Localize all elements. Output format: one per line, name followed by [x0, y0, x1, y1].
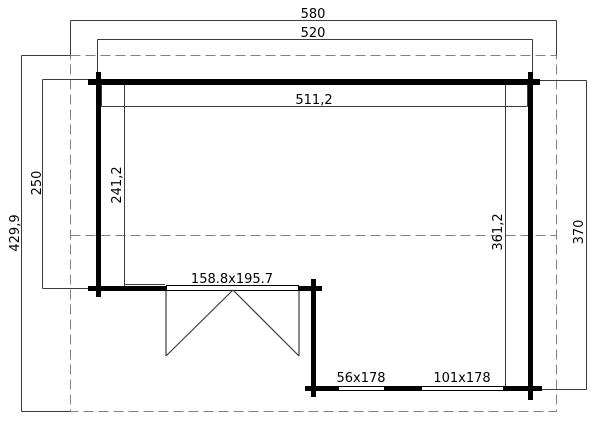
wall-top	[88, 79, 540, 85]
floor-plan-canvas: 580 520 511,2 241,2 250 429,9 361,2 370 …	[0, 0, 600, 429]
wall-right	[528, 72, 533, 400]
double-door	[166, 286, 299, 357]
wall-door-right	[299, 286, 322, 291]
dim-label-right-section-depth: 370	[572, 220, 587, 245]
dim-label-left-section-depth: 250	[30, 171, 45, 196]
wall-middle-vertical	[311, 279, 316, 397]
floor-plan: 580 520 511,2 241,2 250 429,9 361,2 370 …	[0, 0, 600, 429]
window-large-size-label: 101x178	[433, 371, 490, 386]
dim-label-inner-width: 511,2	[295, 93, 332, 108]
dim-label-wall-width: 520	[301, 26, 326, 41]
windows	[339, 387, 504, 391]
dim-label-inner-depth-left: 241,2	[110, 166, 125, 203]
wall-left	[96, 72, 101, 297]
door-size-label: 158.8x195.7	[191, 272, 273, 287]
dim-label-inner-depth-right: 361,2	[491, 213, 506, 250]
dimension-labels: 580 520 511,2 241,2 250 429,9 361,2 370 …	[8, 7, 587, 386]
dim-label-overall-width: 580	[301, 7, 326, 22]
window-small	[339, 387, 385, 391]
window-large	[422, 387, 504, 391]
wall-door-left	[88, 286, 166, 291]
dim-label-overall-depth: 429,9	[8, 214, 23, 251]
window-small-size-label: 56x178	[336, 371, 385, 386]
